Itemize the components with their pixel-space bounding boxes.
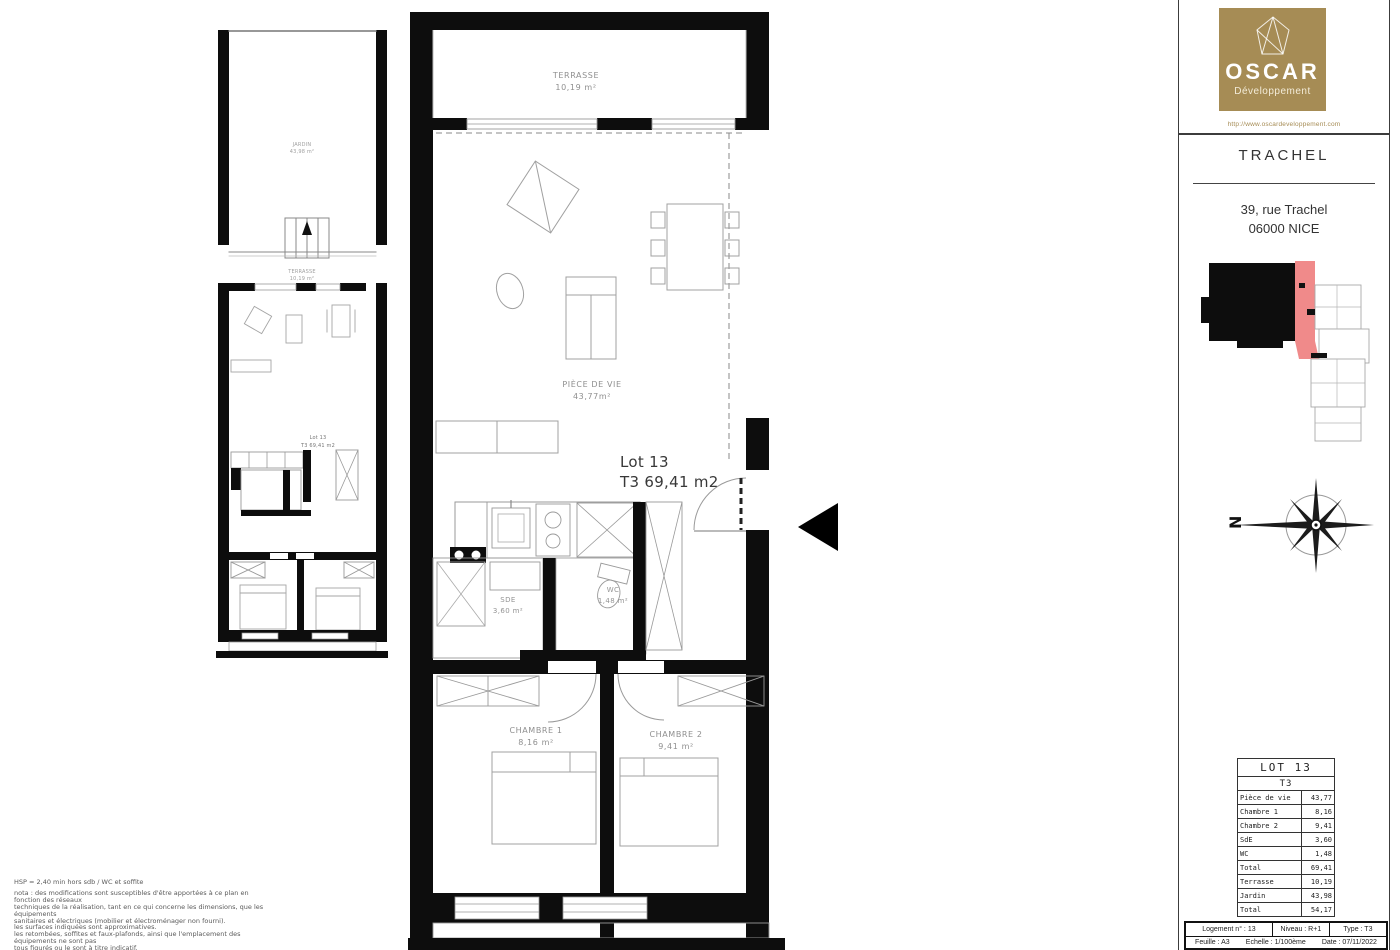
project-address: 39, rue Trachel 06000 NICE xyxy=(1179,200,1389,238)
terrasse-label: TERRASSE xyxy=(552,71,599,80)
row-label: SdE xyxy=(1238,833,1302,847)
wall-left xyxy=(410,12,433,938)
row-value: 10,19 xyxy=(1302,875,1335,889)
small-plan-jardin-label: JARDIN xyxy=(292,142,312,148)
small-plan-lot-type: T3 69,41 m2 xyxy=(300,443,335,449)
washbasin-icon xyxy=(490,562,540,590)
row-label: Terrasse xyxy=(1238,875,1302,889)
table-row: Total69,41 xyxy=(1238,861,1335,875)
table-row: Terrasse10,19 xyxy=(1238,875,1335,889)
small-plan-terrasse-area: 10,19 m² xyxy=(290,276,314,282)
gem-icon xyxy=(1253,15,1293,57)
area-table-title: LOT 13 xyxy=(1238,759,1335,777)
terrasse-area: 10,19 m² xyxy=(555,83,596,92)
lot-number-label: Lot 13 xyxy=(620,453,669,471)
brand-subtitle: Développement xyxy=(1234,86,1311,97)
table-row: Chambre 18,16 xyxy=(1238,805,1335,819)
small-plan-terrasse-label: TERRASSE xyxy=(287,269,316,275)
row-label: Chambre 1 xyxy=(1238,805,1302,819)
titleblock-echelle: Echelle : 1/100ème xyxy=(1246,939,1306,946)
row-value: 1,48 xyxy=(1302,847,1335,861)
area-table: LOT 13 T3 Pièce de vie43,77 Chambre 18,1… xyxy=(1237,758,1335,917)
row-value: 54,17 xyxy=(1302,903,1335,917)
row-value: 43,77 xyxy=(1302,791,1335,805)
lot-highlight xyxy=(1295,261,1315,341)
north-label: N xyxy=(1226,516,1245,529)
titleblock-type: Type : T3 xyxy=(1330,923,1386,936)
compass-star xyxy=(1236,478,1374,573)
small-plan: JARDIN 43,98 m² TERRASSE 10,19 m² Lot 13… xyxy=(216,30,388,658)
address-line1: 39, rue Trachel xyxy=(1179,200,1389,219)
floor-plan-sheet: JARDIN 43,98 m² TERRASSE 10,19 m² Lot 13… xyxy=(0,0,1400,950)
titleblock-date: Date : 07/11/2022 xyxy=(1322,939,1377,946)
plan-drawing-canvas: JARDIN 43,98 m² TERRASSE 10,19 m² Lot 13… xyxy=(0,0,1170,950)
brand-logo: OSCAR Développement xyxy=(1219,8,1326,111)
table-row: SdE3,60 xyxy=(1238,833,1335,847)
chambre1-label: CHAMBRE 1 xyxy=(509,726,562,735)
plan-notes: HSP = 2,40 min hors sdb / WC et soffite … xyxy=(14,879,264,950)
sde-label: SDE xyxy=(500,596,515,604)
row-label: Total xyxy=(1238,903,1302,917)
project-title: TRACHEL xyxy=(1179,147,1389,164)
note-line: tous figurés ou le sont à titre indicati… xyxy=(14,945,264,950)
wall-top xyxy=(433,12,769,30)
wall-right-upper xyxy=(746,12,769,130)
table-row: Pièce de vie43,77 xyxy=(1238,791,1335,805)
bedroom1-door xyxy=(548,674,596,722)
building-locator-map xyxy=(1187,253,1382,458)
table-row: WC1,48 xyxy=(1238,847,1335,861)
chambre2-label: CHAMBRE 2 xyxy=(649,730,702,739)
bedroom2-door xyxy=(618,674,664,720)
note-line: nota : des modifications sont susceptibl… xyxy=(14,890,264,904)
bathroom xyxy=(433,502,682,662)
titleblock-niveau: Niveau : R+1 xyxy=(1273,923,1330,936)
brand-website: http://www.oscardeveloppement.com xyxy=(1179,121,1389,128)
note-line: techniques de la réalisation, tant en ce… xyxy=(14,904,264,918)
note-line: les retombées, soffites et faux-plafonds… xyxy=(14,931,264,945)
main-plan: TERRASSE 10,19 m² PIÈCE DE VIE 43,77m² L… xyxy=(408,12,838,950)
row-value: 43,98 xyxy=(1302,889,1335,903)
mini-kitchen xyxy=(231,450,358,516)
table-row: Total54,17 xyxy=(1238,903,1335,917)
title-panel: OSCAR Développement http://www.oscardeve… xyxy=(1178,0,1390,950)
row-value: 9,41 xyxy=(1302,819,1335,833)
building-mass xyxy=(1201,263,1295,348)
piece-de-vie-label: PIÈCE DE VIE xyxy=(562,378,621,389)
table-row: Jardin43,98 xyxy=(1238,889,1335,903)
area-table-subtitle: T3 xyxy=(1238,777,1335,791)
row-label: Total xyxy=(1238,861,1302,875)
compass-rose: N xyxy=(1226,470,1376,580)
kitchen xyxy=(450,500,640,563)
titleblock-logement: Logement n° : 13 xyxy=(1186,923,1273,936)
wc-label: WC xyxy=(607,586,620,594)
neighbor-plan-outline xyxy=(1311,285,1369,441)
entrance-arrow-icon xyxy=(798,503,838,551)
row-label: Jardin xyxy=(1238,889,1302,903)
small-plan-lot-label: Lot 13 xyxy=(310,435,327,441)
chambre2-area: 9,41 m² xyxy=(658,742,694,751)
brand-name: OSCAR xyxy=(1225,59,1319,85)
row-value: 3,60 xyxy=(1302,833,1335,847)
living-furniture xyxy=(436,161,739,453)
piece-de-vie-area: 43,77m² xyxy=(573,392,611,401)
row-label: Chambre 2 xyxy=(1238,819,1302,833)
row-label: WC xyxy=(1238,847,1302,861)
row-value: 69,41 xyxy=(1302,861,1335,875)
small-plan-jardin-area: 43,98 m² xyxy=(290,149,314,155)
sde-area: 3,60 m² xyxy=(493,607,523,615)
lot-type-label: T3 69,41 m2 xyxy=(619,473,719,491)
row-label: Pièce de vie xyxy=(1238,791,1302,805)
chambre1-area: 8,16 m² xyxy=(518,738,554,747)
table-row: Chambre 29,41 xyxy=(1238,819,1335,833)
mini-furniture xyxy=(231,305,355,372)
address-line2: 06000 NICE xyxy=(1179,219,1389,238)
panel-divider xyxy=(1179,133,1389,135)
row-value: 8,16 xyxy=(1302,805,1335,819)
titleblock-feuille: Feuille : A3 xyxy=(1195,939,1230,946)
title-underline xyxy=(1193,183,1375,184)
note-line: HSP = 2,40 min hors sdb / WC et soffite xyxy=(14,879,264,886)
wc-area: 1,48 m² xyxy=(598,597,628,605)
title-block: Logement n° : 13 Niveau : R+1 Type : T3 … xyxy=(1184,921,1388,950)
